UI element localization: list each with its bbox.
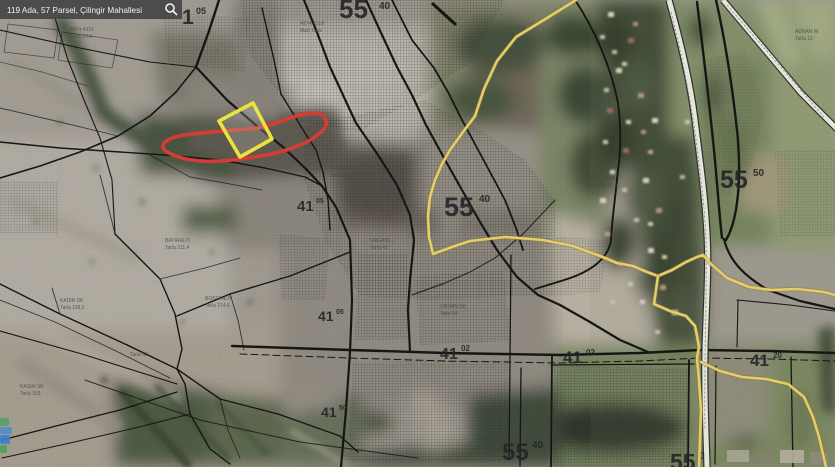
svg-text:40: 40 bbox=[479, 194, 491, 205]
svg-text:40: 40 bbox=[532, 440, 544, 451]
svg-text:02: 02 bbox=[586, 348, 595, 357]
svg-text:KADIR SK: KADIR SK bbox=[60, 298, 84, 304]
svg-text:41: 41 bbox=[318, 308, 334, 324]
svg-text:Tarla 43: Tarla 43 bbox=[370, 245, 388, 251]
svg-text:ORHAN SK: ORHAN SK bbox=[440, 304, 467, 310]
svg-text:KEVKAS: KEVKAS bbox=[595, 176, 616, 182]
svg-text:41: 41 bbox=[440, 346, 458, 363]
svg-text:ARSA 4-31: ARSA 4-31 bbox=[330, 166, 355, 172]
svg-text:41: 41 bbox=[563, 348, 582, 367]
svg-text:41: 41 bbox=[750, 351, 769, 370]
svg-text:41: 41 bbox=[297, 198, 314, 215]
svg-text:50: 50 bbox=[753, 168, 765, 179]
svg-text:Tarla 12: Tarla 12 bbox=[795, 36, 813, 42]
svg-text:Tarla 214,6: Tarla 214,6 bbox=[205, 303, 230, 309]
svg-text:Tarla 309: Tarla 309 bbox=[20, 391, 41, 397]
svg-text:55: 55 bbox=[670, 449, 696, 467]
svg-text:20: 20 bbox=[773, 351, 782, 360]
svg-text:Tarla 84: Tarla 84 bbox=[440, 311, 458, 317]
svg-text:Mah Tarla: Mah Tarla bbox=[300, 28, 322, 34]
svg-text:50: 50 bbox=[339, 405, 347, 412]
svg-text:55: 55 bbox=[502, 439, 529, 466]
svg-text:55: 55 bbox=[720, 166, 748, 194]
svg-text:55: 55 bbox=[339, 0, 368, 24]
svg-text:BOSTANLIK: BOSTANLIK bbox=[205, 296, 233, 302]
svg-text:Tarla 48: Tarla 48 bbox=[130, 352, 148, 358]
svg-text:BAYIRALTI: BAYIRALTI bbox=[165, 238, 190, 244]
svg-text:Tarla 614,2: Tarla 614,2 bbox=[330, 173, 355, 179]
svg-text:119 Ada, 57 Parsel, Çilingir M: 119 Ada, 57 Parsel, Çilingir Mahallesi bbox=[7, 6, 142, 15]
svg-text:1: 1 bbox=[182, 6, 194, 29]
svg-text:05: 05 bbox=[316, 198, 324, 205]
svg-text:Tarla 23,4: Tarla 23,4 bbox=[70, 34, 92, 40]
svg-text:41: 41 bbox=[321, 404, 337, 420]
svg-text:55: 55 bbox=[444, 192, 474, 222]
svg-text:05: 05 bbox=[196, 6, 206, 16]
svg-text:ADNAN M: ADNAN M bbox=[795, 29, 818, 35]
svg-text:Tarla 96,4: Tarla 96,4 bbox=[595, 183, 617, 189]
svg-text:4974-4316: 4974-4316 bbox=[70, 27, 94, 33]
svg-text:Tarla 118,2: Tarla 118,2 bbox=[60, 305, 85, 311]
svg-text:05: 05 bbox=[336, 309, 344, 316]
svg-text:02: 02 bbox=[461, 344, 470, 353]
svg-text:URGANCI: URGANCI bbox=[370, 238, 393, 244]
svg-text:40: 40 bbox=[379, 1, 391, 12]
svg-text:4974-4318: 4974-4318 bbox=[300, 21, 324, 27]
svg-text:KASIM SK: KASIM SK bbox=[20, 384, 44, 390]
svg-text:Tarla 211,4: Tarla 211,4 bbox=[165, 245, 190, 251]
